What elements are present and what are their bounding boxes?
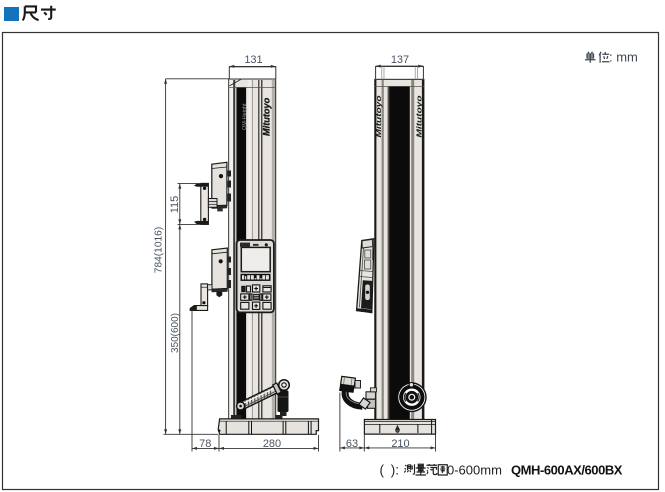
svg-text:210: 210: [391, 438, 409, 450]
svg-text:QM-Height: QM-Height: [242, 103, 248, 130]
svg-text:63: 63: [346, 438, 358, 450]
svg-text:):: ):: [391, 463, 399, 478]
svg-text:QMH-600AX/600BX: QMH-600AX/600BX: [511, 463, 623, 478]
svg-text:350(600): 350(600): [170, 313, 181, 353]
svg-text:Mitutoyo: Mitutoyo: [417, 94, 424, 137]
svg-text:Mitutoyo: Mitutoyo: [262, 97, 272, 136]
svg-text:Mitutoyo: Mitutoyo: [376, 94, 383, 137]
svg-text:115: 115: [169, 196, 181, 214]
svg-text:0-600mm: 0-600mm: [447, 463, 502, 478]
svg-text:78: 78: [199, 438, 211, 450]
svg-text:131: 131: [244, 54, 262, 66]
svg-text:784(1016): 784(1016): [154, 227, 165, 273]
svg-text:280: 280: [263, 438, 281, 450]
svg-text:(: (: [380, 463, 385, 478]
svg-text:137: 137: [391, 54, 409, 66]
svg-text:: mm: : mm: [609, 50, 638, 65]
